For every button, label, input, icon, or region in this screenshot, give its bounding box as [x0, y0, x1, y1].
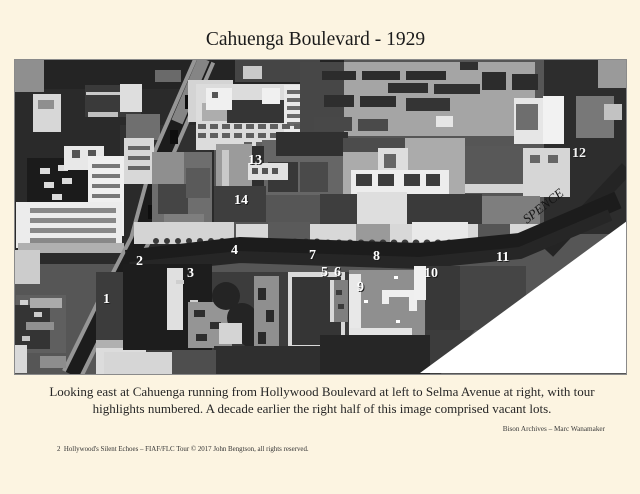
svg-text:11: 11: [496, 250, 509, 265]
svg-text:14: 14: [234, 193, 248, 208]
svg-text:3: 3: [187, 266, 194, 281]
svg-text:10: 10: [424, 266, 438, 281]
svg-text:1: 1: [103, 292, 110, 307]
svg-text:12: 12: [572, 146, 586, 161]
svg-text:5: 5: [321, 265, 328, 280]
svg-text:2: 2: [136, 254, 143, 269]
svg-text:13: 13: [248, 153, 262, 168]
svg-text:7: 7: [309, 248, 316, 263]
svg-text:6: 6: [334, 265, 341, 280]
svg-text:9: 9: [357, 280, 364, 295]
svg-text:4: 4: [231, 243, 238, 258]
svg-text:8: 8: [373, 249, 380, 264]
